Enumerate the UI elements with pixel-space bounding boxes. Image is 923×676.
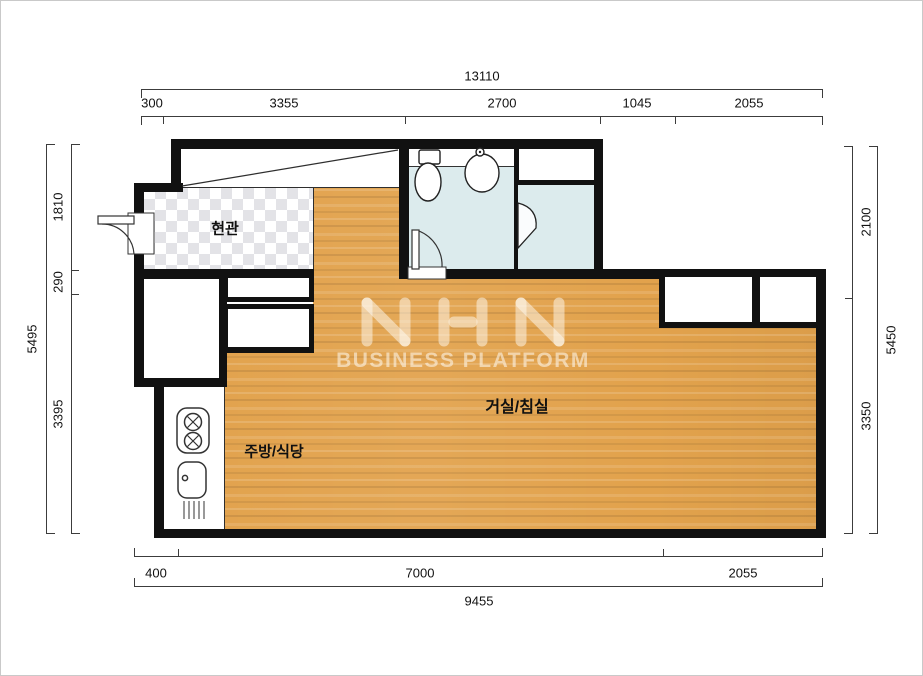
dim-tick [845, 298, 853, 299]
dim-tick [71, 270, 79, 271]
dim-tick [46, 533, 55, 534]
dim-left-total: 5495 [26, 325, 39, 354]
dim-tick [844, 533, 853, 534]
door-swing-icon [518, 203, 536, 248]
dim-top-total: 13110 [464, 70, 499, 83]
dim-tick [675, 116, 676, 124]
dim-line [71, 144, 72, 534]
drain-hatch-icon [184, 501, 204, 519]
dim-top-seg: 3355 [270, 97, 299, 110]
dim-top-seg: 300 [141, 97, 163, 110]
dim-line [46, 144, 47, 534]
dim-left-seg: 290 [52, 271, 65, 293]
nhn-logo [359, 295, 567, 349]
toilet-icon [415, 150, 441, 201]
entrance-label: 현관 [211, 222, 239, 237]
kitchen-sink-icon [178, 462, 206, 498]
dim-line [134, 556, 823, 557]
dim-line [134, 586, 823, 587]
dim-left-seg: 3395 [52, 400, 65, 429]
entrance-door-swing-icon [98, 213, 154, 254]
dim-tick [822, 578, 823, 587]
dim-tick [163, 116, 164, 124]
dim-tick [663, 549, 664, 557]
dim-tick [822, 89, 823, 98]
dim-top-seg: 2700 [488, 97, 517, 110]
bathroom-door-swing-icon [408, 230, 446, 279]
dim-right-seg: 2100 [860, 208, 873, 237]
living-room-label: 거실/침실 [485, 400, 548, 416]
dim-top-seg: 1045 [623, 97, 652, 110]
dim-line [141, 116, 823, 117]
dim-line [877, 146, 878, 534]
dim-tick [46, 144, 55, 145]
dim-line [141, 89, 823, 90]
dim-line [852, 146, 853, 534]
dim-tick [844, 146, 853, 147]
floor-plan: 현관 주방/식당 거실/침실 BUSINESS PLATFORM 13110 3… [0, 0, 923, 676]
dim-top-seg: 2055 [735, 97, 764, 110]
dim-right-seg: 3350 [860, 402, 873, 431]
stove-icon [177, 408, 209, 453]
loft-diagonal-line [182, 150, 398, 186]
dim-bottom-seg: 2055 [729, 567, 758, 580]
dim-bottom-total: 9455 [465, 595, 494, 608]
dim-tick [600, 116, 601, 124]
watermark-subtitle: BUSINESS PLATFORM [336, 349, 590, 373]
dim-tick [71, 294, 79, 295]
dim-tick [822, 548, 823, 557]
bathroom-sink-icon [465, 148, 499, 192]
dim-tick [405, 116, 406, 124]
dim-bottom-seg: 7000 [406, 567, 435, 580]
dim-tick [178, 549, 179, 557]
dim-bottom-seg: 400 [145, 567, 167, 580]
dim-left-seg: 1810 [52, 193, 65, 222]
kitchen-label: 주방/식당 [244, 445, 303, 460]
dim-tick [134, 548, 135, 557]
dim-tick [822, 116, 823, 125]
dim-tick [869, 146, 878, 147]
dim-tick [71, 533, 80, 534]
dim-tick [869, 533, 878, 534]
dim-right-total: 5450 [885, 326, 898, 355]
dim-tick [71, 144, 80, 145]
dim-tick [134, 578, 135, 587]
dim-tick [141, 116, 142, 125]
